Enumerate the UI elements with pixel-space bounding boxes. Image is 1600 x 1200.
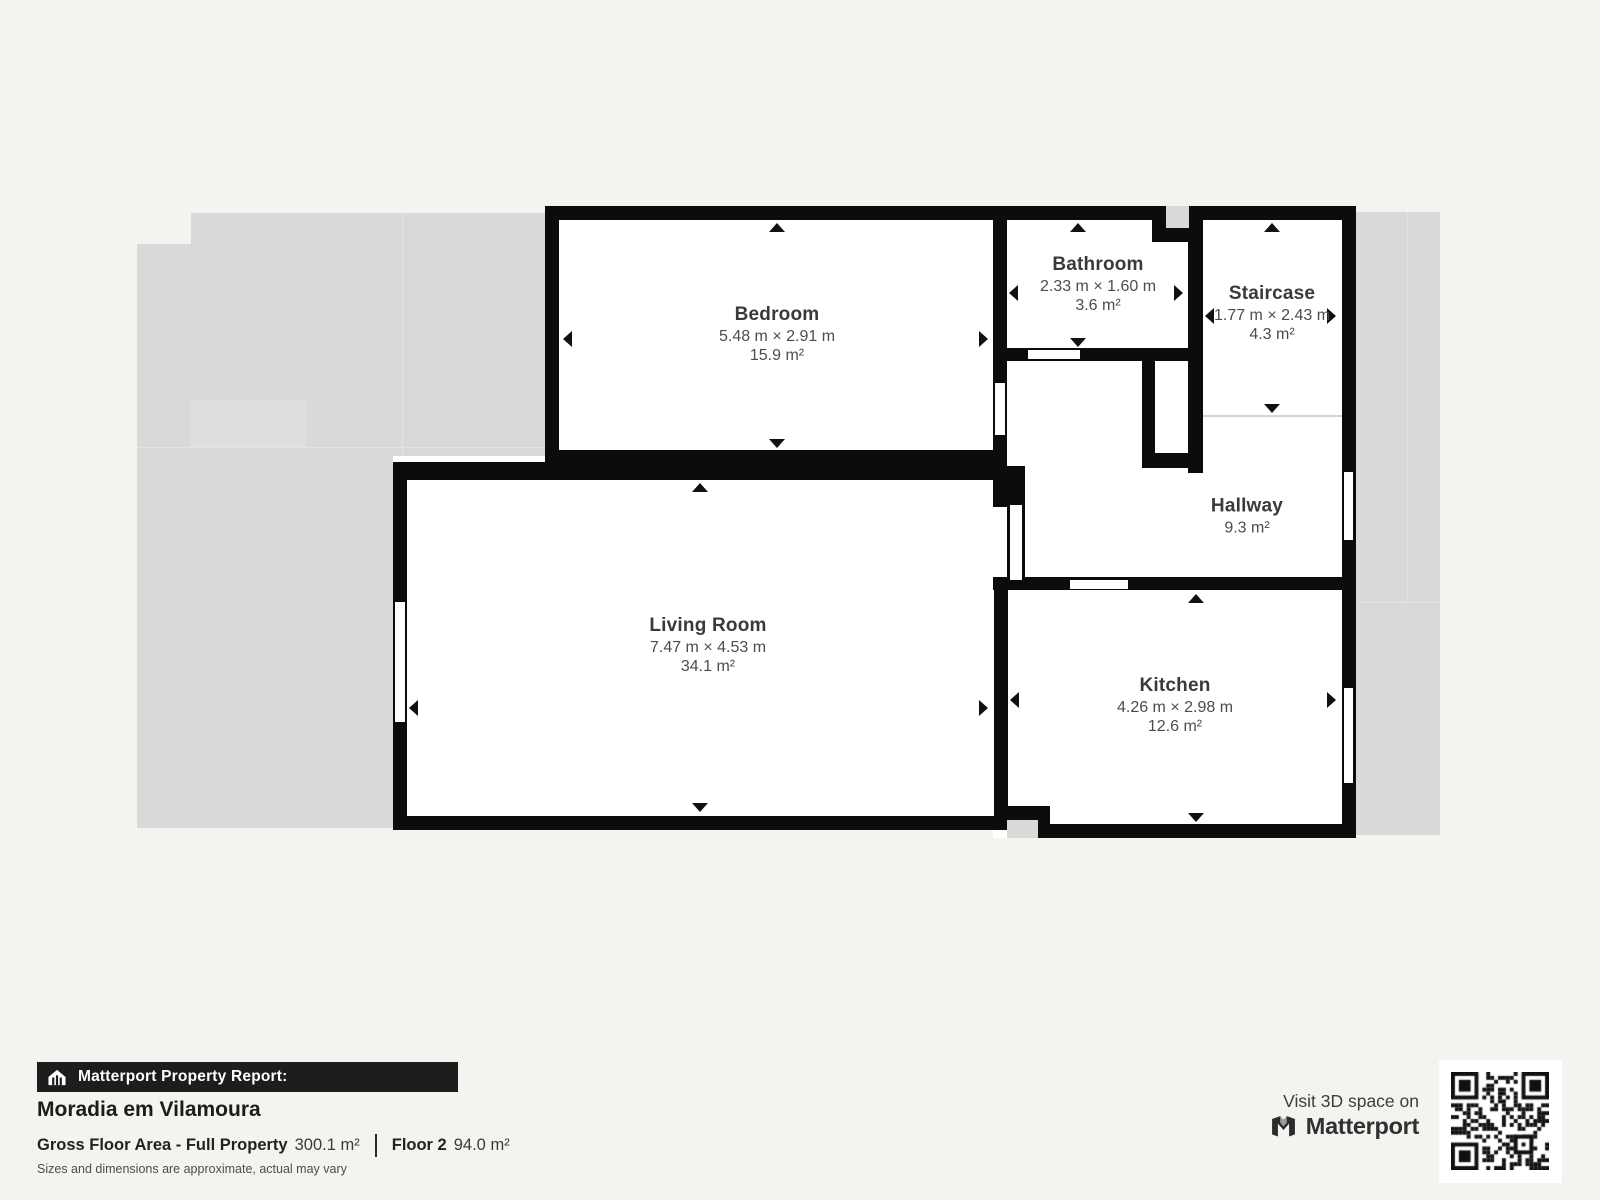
silhouette-left xyxy=(137,462,393,828)
window-hallway xyxy=(1344,472,1353,540)
room-name: Bedroom xyxy=(719,303,835,327)
qr-code-pattern xyxy=(1451,1072,1549,1170)
room-dimensions: 7.47 m × 4.53 m xyxy=(649,638,766,657)
qr-code xyxy=(1439,1060,1562,1183)
room-label-kitchen: Kitchen 4.26 m × 2.98 m 12.6 m² xyxy=(1117,674,1233,736)
disclaimer-text: Sizes and dimensions are approximate, ac… xyxy=(37,1162,347,1176)
door-opening-kitchen xyxy=(1070,580,1128,589)
room-area: 15.9 m² xyxy=(719,346,835,365)
room-dimensions: 5.48 m × 2.91 m xyxy=(719,327,835,346)
divider xyxy=(375,1134,377,1157)
dim-arrow-right-icon xyxy=(979,700,988,716)
silhouette-seam xyxy=(1356,602,1440,603)
dim-arrow-down-icon xyxy=(1264,404,1280,413)
window-living-room xyxy=(395,602,405,722)
room-name: Living Room xyxy=(649,614,766,638)
floor-value: 94.0 m² xyxy=(454,1136,510,1155)
visit-3d-text: Visit 3D space on xyxy=(1283,1091,1419,1112)
room-area: 4.3 m² xyxy=(1214,325,1330,344)
wall xyxy=(545,206,1356,220)
room-label-hallway: Hallway 9.3 m² xyxy=(1211,495,1283,538)
room-label-living-room: Living Room 7.47 m × 4.53 m 34.1 m² xyxy=(649,614,766,676)
dim-arrow-left-icon xyxy=(409,700,418,716)
room-dimensions: 2.33 m × 1.60 m xyxy=(1040,277,1156,296)
silhouette-left xyxy=(137,244,197,462)
door-opening-living-room xyxy=(1010,505,1022,580)
silhouette-seam xyxy=(137,447,552,448)
wall xyxy=(1038,824,1356,838)
wall xyxy=(1142,348,1155,467)
silhouette-seam xyxy=(1407,212,1408,602)
silhouette-right xyxy=(1356,212,1440,835)
property-name: Moradia em Vilamoura xyxy=(37,1098,261,1122)
staircase-open-boundary xyxy=(1203,415,1342,417)
dim-arrow-left-icon xyxy=(1009,285,1018,301)
room-area: 12.6 m² xyxy=(1117,717,1233,736)
dim-arrow-down-icon xyxy=(1070,338,1086,347)
wall xyxy=(1038,806,1050,838)
wall xyxy=(993,577,1342,590)
wall xyxy=(1152,206,1166,242)
silhouette-patch xyxy=(190,400,307,447)
wall xyxy=(545,450,1007,480)
dim-arrow-down-icon xyxy=(769,439,785,448)
dim-arrow-right-icon xyxy=(1174,285,1183,301)
dim-arrow-down-icon xyxy=(692,803,708,812)
floor-label: Floor 2 xyxy=(392,1136,447,1155)
room-name: Kitchen xyxy=(1117,674,1233,698)
area-summary: Gross Floor Area - Full Property 300.1 m… xyxy=(37,1134,510,1157)
dim-arrow-left-icon xyxy=(1010,692,1019,708)
wall xyxy=(1142,453,1203,468)
dim-arrow-up-icon xyxy=(769,223,785,232)
matterport-brand: Matterport xyxy=(1270,1113,1419,1140)
door-opening-bedroom xyxy=(995,383,1005,435)
wall xyxy=(393,816,1007,830)
room-area: 34.1 m² xyxy=(649,657,766,676)
room-name: Hallway xyxy=(1211,495,1283,519)
silhouette-notch xyxy=(1166,206,1189,228)
dim-arrow-up-icon xyxy=(1070,223,1086,232)
dim-arrow-up-icon xyxy=(1264,223,1280,232)
dim-arrow-right-icon xyxy=(979,331,988,347)
wall xyxy=(993,348,1190,361)
dim-arrow-left-icon xyxy=(563,331,572,347)
wall xyxy=(994,577,1008,830)
room-label-bathroom: Bathroom 2.33 m × 1.60 m 3.6 m² xyxy=(1040,253,1156,315)
wall xyxy=(1166,228,1190,242)
matterport-wordmark: Matterport xyxy=(1306,1113,1419,1140)
matterport-m-icon xyxy=(1270,1113,1297,1140)
room-name: Bathroom xyxy=(1040,253,1156,277)
wall xyxy=(545,206,559,480)
report-banner-label: Matterport Property Report: xyxy=(78,1068,288,1086)
wall xyxy=(393,462,553,480)
dim-arrow-down-icon xyxy=(1188,813,1204,822)
dim-arrow-up-icon xyxy=(692,483,708,492)
silhouette-seam xyxy=(402,213,403,462)
wall xyxy=(993,206,1007,480)
gross-area-value: 300.1 m² xyxy=(295,1136,360,1155)
floor-plan-report: Bedroom 5.48 m × 2.91 m 15.9 m² Bathroom… xyxy=(0,0,1600,1200)
room-area: 9.3 m² xyxy=(1211,519,1283,538)
wall xyxy=(1188,206,1203,473)
door-opening-bathroom xyxy=(1028,350,1080,359)
gross-area-label: Gross Floor Area - Full Property xyxy=(37,1136,288,1155)
room-label-bedroom: Bedroom 5.48 m × 2.91 m 15.9 m² xyxy=(719,303,835,365)
room-dimensions: 1.77 m × 2.43 m xyxy=(1214,306,1330,325)
house-icon xyxy=(48,1069,66,1086)
dim-arrow-left-icon xyxy=(1205,308,1214,324)
room-name: Staircase xyxy=(1214,282,1330,306)
window-kitchen xyxy=(1344,688,1353,783)
room-label-staircase: Staircase 1.77 m × 2.43 m 4.3 m² xyxy=(1214,282,1330,344)
room-dimensions: 4.26 m × 2.98 m xyxy=(1117,698,1233,717)
silhouette-notch xyxy=(1007,820,1038,838)
dim-arrow-up-icon xyxy=(1188,594,1204,603)
dim-arrow-right-icon xyxy=(1327,692,1336,708)
report-banner: Matterport Property Report: xyxy=(37,1062,458,1092)
room-area: 3.6 m² xyxy=(1040,296,1156,315)
